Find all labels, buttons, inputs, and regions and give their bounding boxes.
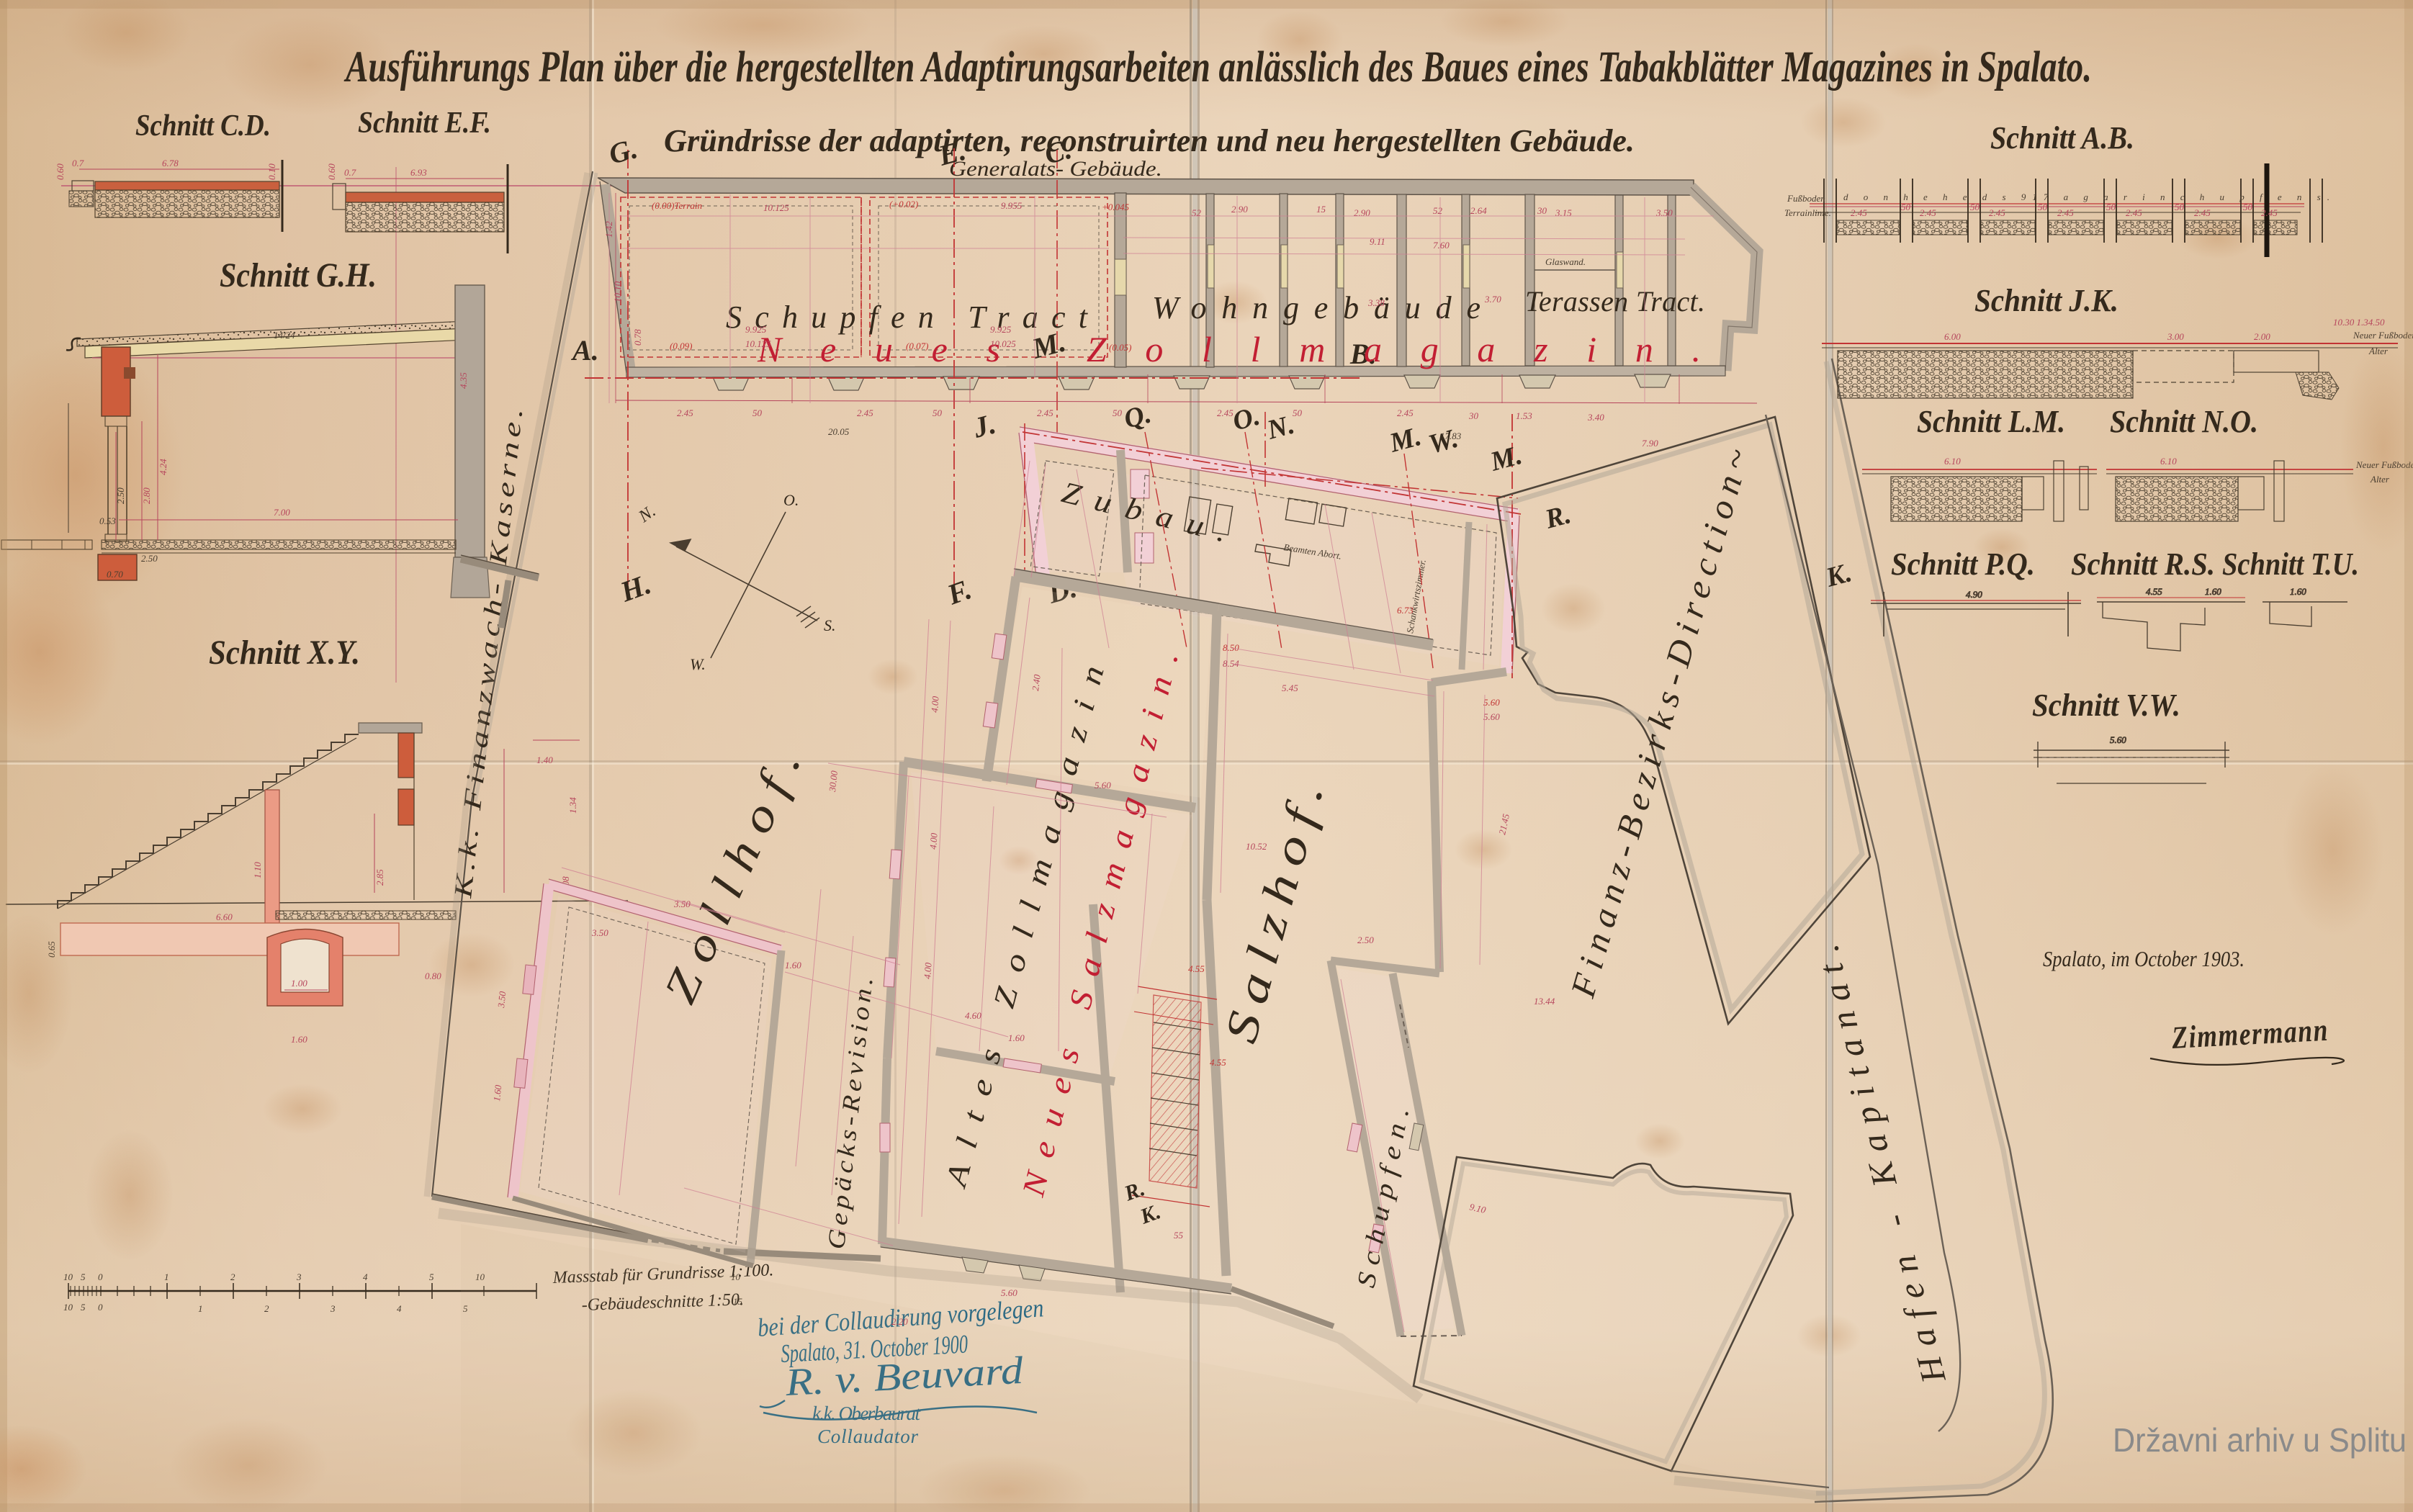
svg-text:0.70: 0.70 [107,569,123,580]
svg-text:50: 50 [2243,202,2253,212]
svg-text:1.60: 1.60 [291,1034,307,1045]
svg-text:30: 30 [1537,205,1547,216]
svg-text:10: 10 [63,1272,73,1282]
svg-text:2.45: 2.45 [1851,207,1867,218]
svg-text:Alter: Alter [2368,346,2389,356]
svg-text:7.90: 7.90 [1642,438,1658,449]
svg-text:2.50: 2.50 [1357,935,1374,945]
svg-text:2: 2 [264,1303,269,1314]
svg-text:4.55: 4.55 [2146,586,2162,597]
svg-text:3.50: 3.50 [495,991,508,1009]
svg-text:0.7: 0.7 [72,158,84,168]
svg-text:Schnitt E.F.: Schnitt E.F. [358,107,491,140]
svg-text:Terassen Tract.: Terassen Tract. [1525,285,1709,318]
svg-text:3.38: 3.38 [1367,297,1385,308]
svg-text:3.00: 3.00 [2167,331,2184,342]
svg-text:6.93: 6.93 [410,167,427,178]
svg-text:Schnitt X.Y.: Schnitt X.Y. [209,634,360,672]
svg-text:4: 4 [363,1272,368,1282]
svg-text:2.85: 2.85 [374,869,385,886]
svg-text:W.: W. [690,655,706,673]
svg-text:1.60: 1.60 [2290,586,2306,597]
svg-text:2.45: 2.45 [1989,207,2005,218]
svg-text:2.45: 2.45 [2057,207,2074,218]
svg-text:4.60: 4.60 [965,1010,981,1021]
svg-text:5.45: 5.45 [1282,683,1298,693]
svg-text:10.025: 10.025 [990,338,1016,349]
svg-text:3.15: 3.15 [1555,207,1572,218]
svg-text:4: 4 [397,1303,402,1314]
svg-text:10: 10 [63,1302,73,1313]
svg-text:7.00: 7.00 [274,507,290,518]
svg-text:Državni arhiv u Splitu: Državni arhiv u Splitu [2113,1421,2407,1459]
svg-text:1.60: 1.60 [491,1084,503,1102]
svg-text:Schnitt P.Q.: Schnitt P.Q. [1891,546,2035,582]
svg-text:4.90: 4.90 [1966,589,1982,600]
svg-text:(0.07): (0.07) [906,341,928,351]
svg-text:Schnitt V.W.: Schnitt V.W. [2032,688,2180,723]
svg-text:5: 5 [81,1272,86,1282]
svg-text:5.60: 5.60 [1095,780,1111,791]
svg-text:2.45: 2.45 [2126,207,2142,218]
svg-text:3.70: 3.70 [1484,294,1501,305]
svg-text:Glaswand.: Glaswand. [1545,256,1586,267]
svg-text:2: 2 [230,1272,235,1282]
svg-text:14/24: 14/24 [274,330,295,341]
svg-text:6.10: 6.10 [1944,456,1961,467]
svg-text:6.10: 6.10 [2160,456,2177,467]
svg-text:Spalato, im October 1903.: Spalato, im October 1903. [2043,946,2245,971]
svg-text:2.90: 2.90 [1231,204,1248,215]
svg-text:0: 0 [98,1302,103,1313]
svg-text:10.30 1.34.50: 10.30 1.34.50 [2333,317,2385,328]
svg-text:7.60: 7.60 [1433,240,1450,251]
svg-text:5.60: 5.60 [1001,1287,1017,1298]
svg-text:2.90: 2.90 [1354,207,1370,218]
svg-text:50: 50 [2038,202,2048,212]
svg-text:Schnitt T.U.: Schnitt T.U. [2222,546,2359,582]
svg-text:2.45: 2.45 [857,408,873,418]
svg-text:30: 30 [1468,410,1479,421]
svg-text:2.40: 2.40 [1030,673,1043,691]
svg-text:2.45: 2.45 [677,408,693,418]
svg-text:1.40: 1.40 [536,755,553,765]
svg-text:O.: O. [783,491,799,509]
svg-text:2.80: 2.80 [141,487,152,504]
svg-text:9.925: 9.925 [745,324,767,335]
svg-text:50: 50 [1901,202,1911,212]
svg-text:0.78: 0.78 [632,329,643,346]
svg-text:50: 50 [752,408,763,418]
svg-text:50: 50 [1293,408,1303,418]
svg-text:1.60: 1.60 [785,960,801,971]
svg-text:5.60: 5.60 [1483,711,1500,722]
svg-text:2.45: 2.45 [2194,207,2211,218]
svg-text:0.7: 0.7 [344,167,356,178]
svg-text:0.80: 0.80 [425,971,441,981]
svg-text:4.55: 4.55 [1210,1057,1226,1068]
svg-text:Ausführungs Plan über die herg: Ausführungs Plan über die hergestellten … [343,43,2092,91]
svg-text:A.: A. [570,334,599,366]
svg-text:Schnitt N.O.: Schnitt N.O. [2110,404,2258,439]
svg-text:55: 55 [1174,1230,1184,1241]
svg-text:2.45: 2.45 [1037,408,1053,418]
svg-text:Schnitt R.S.: Schnitt R.S. [2071,546,2215,582]
svg-text:50: 50 [933,408,943,418]
svg-text:6.78: 6.78 [162,158,179,168]
svg-text:1.10: 1.10 [252,862,263,878]
svg-text:30.00: 30.00 [827,770,840,793]
svg-text:d o n h e h e d s 917 a: d o n h e h e d s 917 a g a r i n c h u … [1843,192,2336,202]
svg-text:50: 50 [2175,202,2185,212]
svg-text:2.00: 2.00 [2254,331,2270,342]
svg-text:4.00: 4.00 [922,962,934,979]
svg-text:(0.09): (0.09) [670,341,692,351]
svg-text:5: 5 [429,1272,434,1282]
svg-text:(0.05): (0.05) [1109,342,1131,353]
svg-text:1.60: 1.60 [1008,1032,1025,1043]
svg-text:2.45: 2.45 [2261,207,2278,218]
svg-text:5: 5 [81,1302,86,1313]
svg-text:2.50: 2.50 [141,553,158,564]
svg-text:10.125: 10.125 [745,338,771,349]
svg-text:0.10: 0.10 [266,163,277,180]
svg-text:9.955: 9.955 [1001,200,1023,211]
svg-text:0.53: 0.53 [99,516,116,526]
svg-text:50: 50 [1970,202,1980,212]
svg-text:8.50: 8.50 [1223,642,1239,653]
svg-text:1.00: 1.00 [291,978,307,989]
svg-text:(0.00)Terrain: (0.00)Terrain [652,200,702,211]
svg-text:0.60: 0.60 [55,163,66,180]
svg-text:0.60: 0.60 [326,163,337,180]
svg-text:4.00: 4.00 [927,832,940,850]
svg-text:6.00: 6.00 [1944,331,1961,342]
svg-text:10.10: 10.10 [612,281,623,302]
svg-text:6.73: 6.73 [1397,605,1414,616]
svg-text:52: 52 [1433,205,1443,216]
svg-text:10.125: 10.125 [763,202,789,213]
svg-text:13.44: 13.44 [1534,996,1555,1007]
svg-text:15: 15 [1316,204,1326,215]
svg-text:3: 3 [296,1272,302,1282]
svg-text:3.50: 3.50 [591,927,608,938]
svg-text:Neues Zollmagazin.: Neues Zollmagazin. [757,329,1744,369]
svg-text:Gründrisse der adaptirten, rec: Gründrisse der adaptirten, reconstruirte… [664,123,1635,158]
svg-text:2.50: 2.50 [115,487,126,504]
svg-text:2.45: 2.45 [1920,207,1936,218]
svg-text:4.00: 4.00 [929,696,941,713]
svg-text:Fußboden: Fußboden [1787,193,1825,204]
svg-text:9.11: 9.11 [1370,236,1385,247]
svg-text:5.60: 5.60 [2110,734,2126,745]
svg-text:+0.045: +0.045 [1102,202,1130,212]
svg-text:Schnitt A.B.: Schnitt A.B. [1990,120,2134,156]
svg-text:2.45: 2.45 [1397,408,1414,418]
svg-text:S.: S. [824,616,836,634]
svg-text:3: 3 [330,1303,336,1314]
svg-text:8.54: 8.54 [1223,658,1239,669]
svg-text:50: 50 [1113,408,1123,418]
svg-text:3.50: 3.50 [1655,207,1673,218]
svg-text:Alter: Alter [2370,474,2390,485]
svg-text:Schnitt J.K.: Schnitt J.K. [1974,283,2118,318]
svg-text:(+0.02): (+0.02) [889,199,918,210]
svg-text:3.40: 3.40 [1587,412,1604,423]
svg-text:Schnitt L.M.: Schnitt L.M. [1917,404,2065,439]
svg-text:2.64: 2.64 [1470,205,1487,216]
svg-text:4.35: 4.35 [458,372,469,389]
svg-text:52: 52 [1192,207,1202,218]
svg-text:6.60: 6.60 [216,912,233,922]
svg-text:0: 0 [98,1272,103,1282]
svg-text:1: 1 [164,1272,169,1282]
svg-text:Schnitt C.D.: Schnitt C.D. [135,109,271,143]
svg-text:9.925: 9.925 [990,324,1012,335]
svg-text:1: 1 [198,1303,203,1314]
svg-text:Neuer Fußboden.: Neuer Fußboden. [2353,330,2413,341]
svg-text:1.53: 1.53 [1516,410,1532,421]
svg-text:20.05: 20.05 [828,426,850,437]
svg-text:4.24: 4.24 [158,459,168,475]
svg-text:1.60: 1.60 [2205,586,2221,597]
svg-text:3.50: 3.50 [673,899,691,909]
svg-text:1.34: 1.34 [567,797,578,814]
svg-text:4.55: 4.55 [1188,963,1205,974]
svg-text:50: 50 [2106,202,2116,212]
svg-text:Schnitt G.H.: Schnitt G.H. [220,256,377,294]
svg-text:Terrainlinie.: Terrainlinie. [1784,207,1831,218]
svg-text:5.60: 5.60 [1483,697,1500,708]
